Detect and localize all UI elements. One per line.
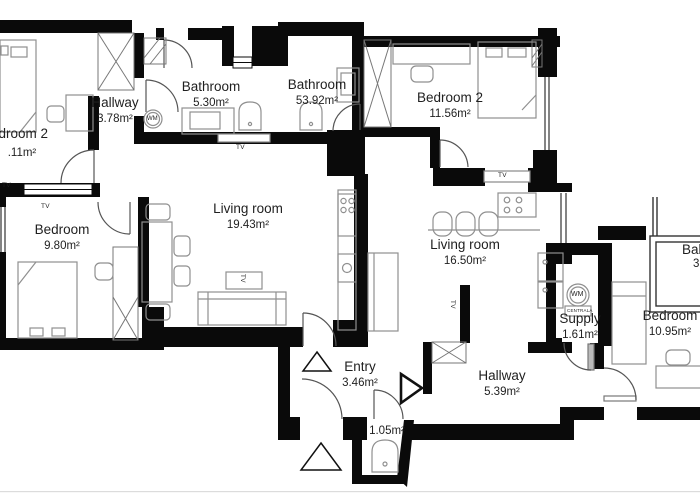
image-edge-line: [0, 491, 700, 492]
chair: [174, 236, 190, 256]
bar-stool: [479, 212, 498, 236]
tv-label: TV: [236, 144, 245, 151]
tv-label: TV: [41, 203, 50, 210]
sofa: [198, 292, 286, 325]
tv-label: TV: [498, 172, 507, 179]
entry-arrow-icon: [401, 374, 422, 403]
tv-board: [484, 171, 530, 182]
wm-label: WM: [147, 116, 158, 122]
sink: [338, 254, 356, 282]
desk: [656, 366, 700, 388]
chair: [174, 266, 190, 286]
sofa: [368, 253, 398, 331]
chair: [666, 350, 690, 365]
triangle-marker: [303, 352, 331, 371]
tv-label: TV: [449, 300, 456, 309]
chair: [146, 204, 170, 220]
tv-label: TV: [2, 182, 11, 189]
toilet-icon: [372, 440, 398, 472]
stove: [498, 193, 536, 217]
shafts-wardrobes: [98, 33, 542, 363]
chair: [95, 263, 113, 280]
windows: [1, 57, 566, 253]
chair: [411, 66, 433, 82]
bed: [478, 42, 536, 118]
centrala-label: CENTRALA: [567, 308, 593, 313]
tv-label: TV: [239, 274, 246, 283]
balcony-rail: [650, 197, 700, 312]
chair: [47, 106, 64, 122]
bar-stool: [456, 212, 475, 236]
bed: [612, 282, 646, 364]
triangle-marker: [301, 443, 341, 470]
floor-plan-drawing: [0, 0, 700, 500]
wm-label: WM: [571, 291, 583, 298]
tv-board: [218, 134, 270, 142]
bar-stool: [433, 212, 452, 236]
floor-plan: Bedroom 2 .11m² Hallway 3.78m² Bathroom …: [0, 0, 700, 500]
